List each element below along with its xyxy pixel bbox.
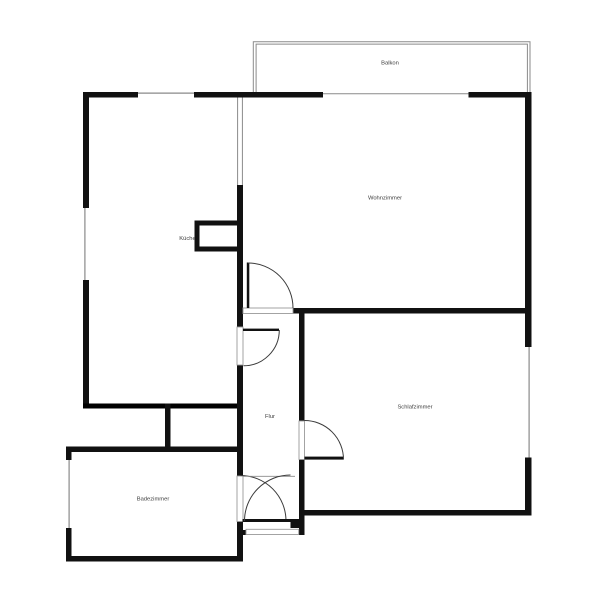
svg-text:Balkon: Balkon <box>381 61 399 67</box>
svg-text:Küche: Küche <box>179 236 195 242</box>
svg-text:Flur: Flur <box>265 414 275 420</box>
svg-text:Wohnzimmer: Wohnzimmer <box>368 196 402 202</box>
svg-text:Badezimmer: Badezimmer <box>137 497 170 503</box>
svg-text:Schlafzimmer: Schlafzimmer <box>397 405 432 411</box>
